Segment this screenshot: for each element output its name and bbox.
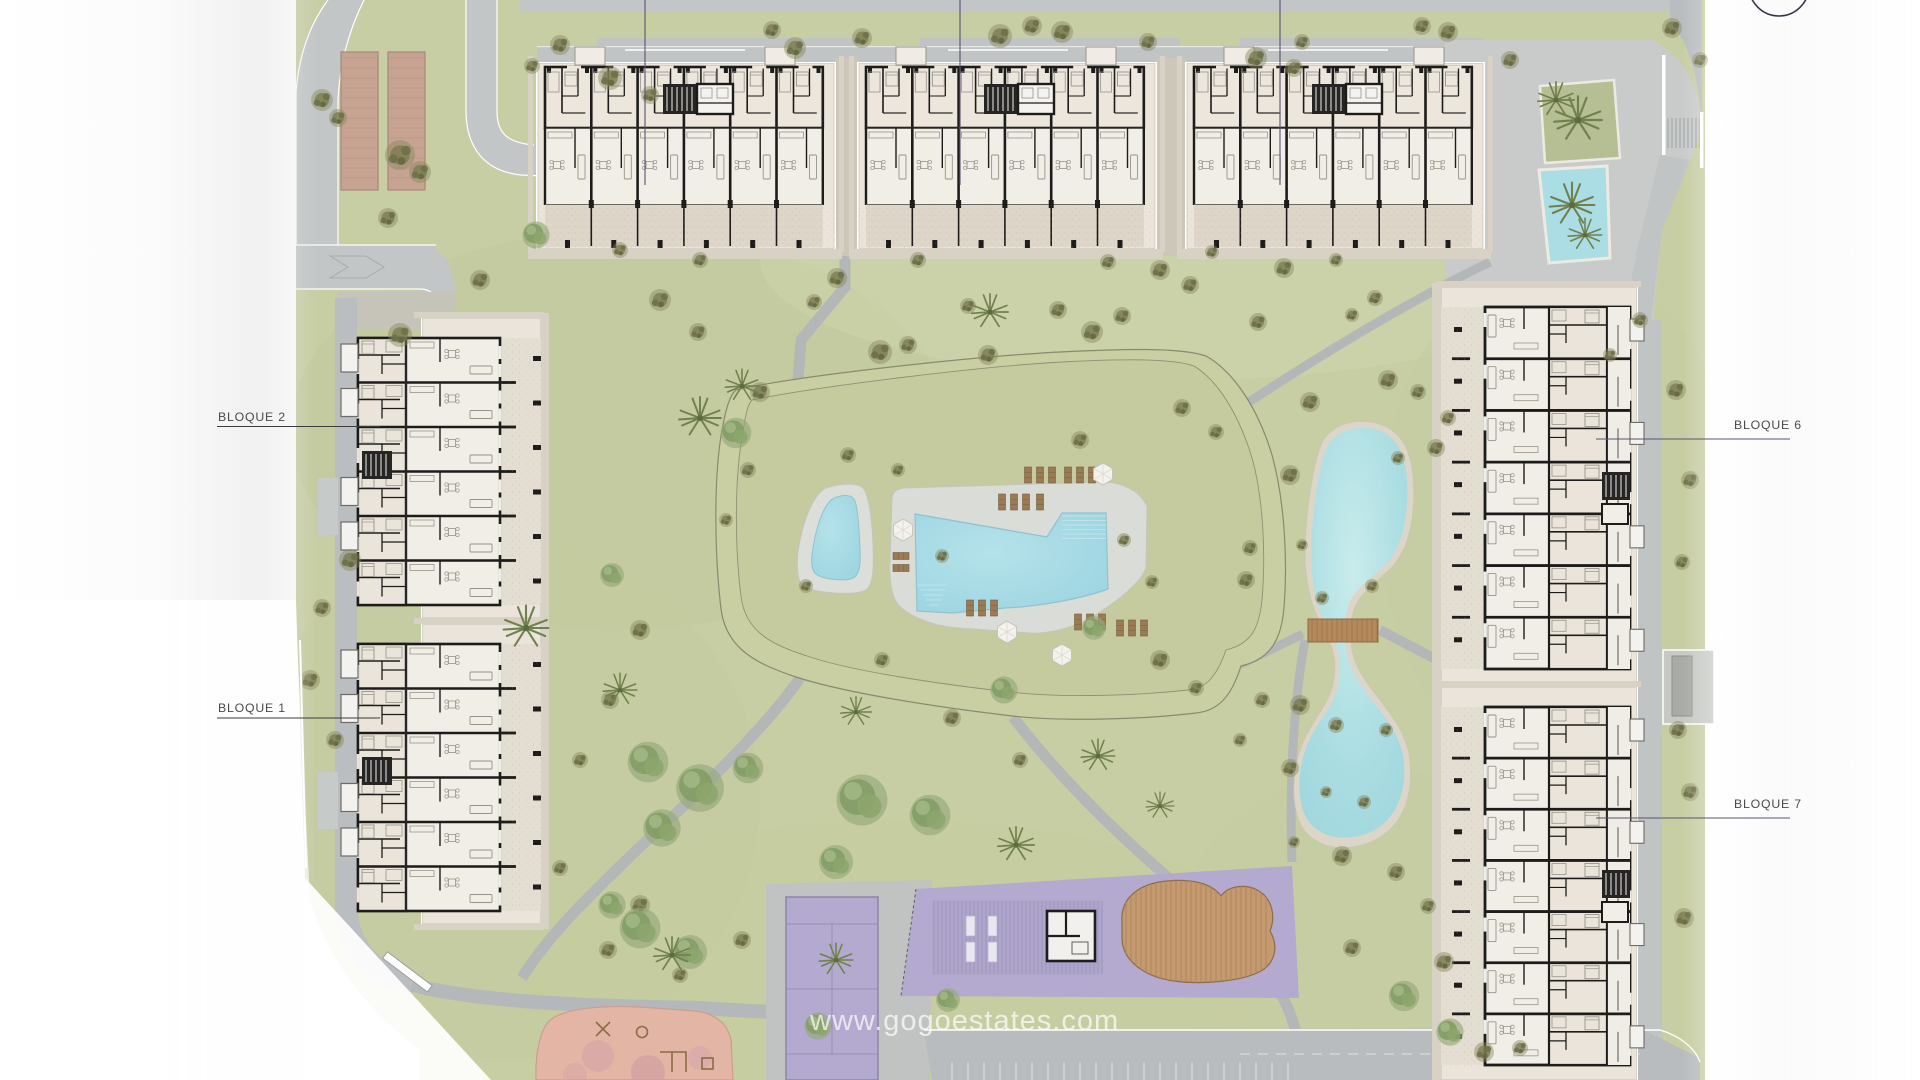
svg-text:BLOQUE 1: BLOQUE 1 <box>218 701 286 715</box>
svg-text:BLOQUE 7: BLOQUE 7 <box>1734 797 1802 811</box>
svg-text:www.gogoestates.com: www.gogoestates.com <box>809 1005 1119 1037</box>
svg-text:BLOQUE 6: BLOQUE 6 <box>1734 418 1802 432</box>
svg-text:BLOQUE 2: BLOQUE 2 <box>218 410 286 424</box>
